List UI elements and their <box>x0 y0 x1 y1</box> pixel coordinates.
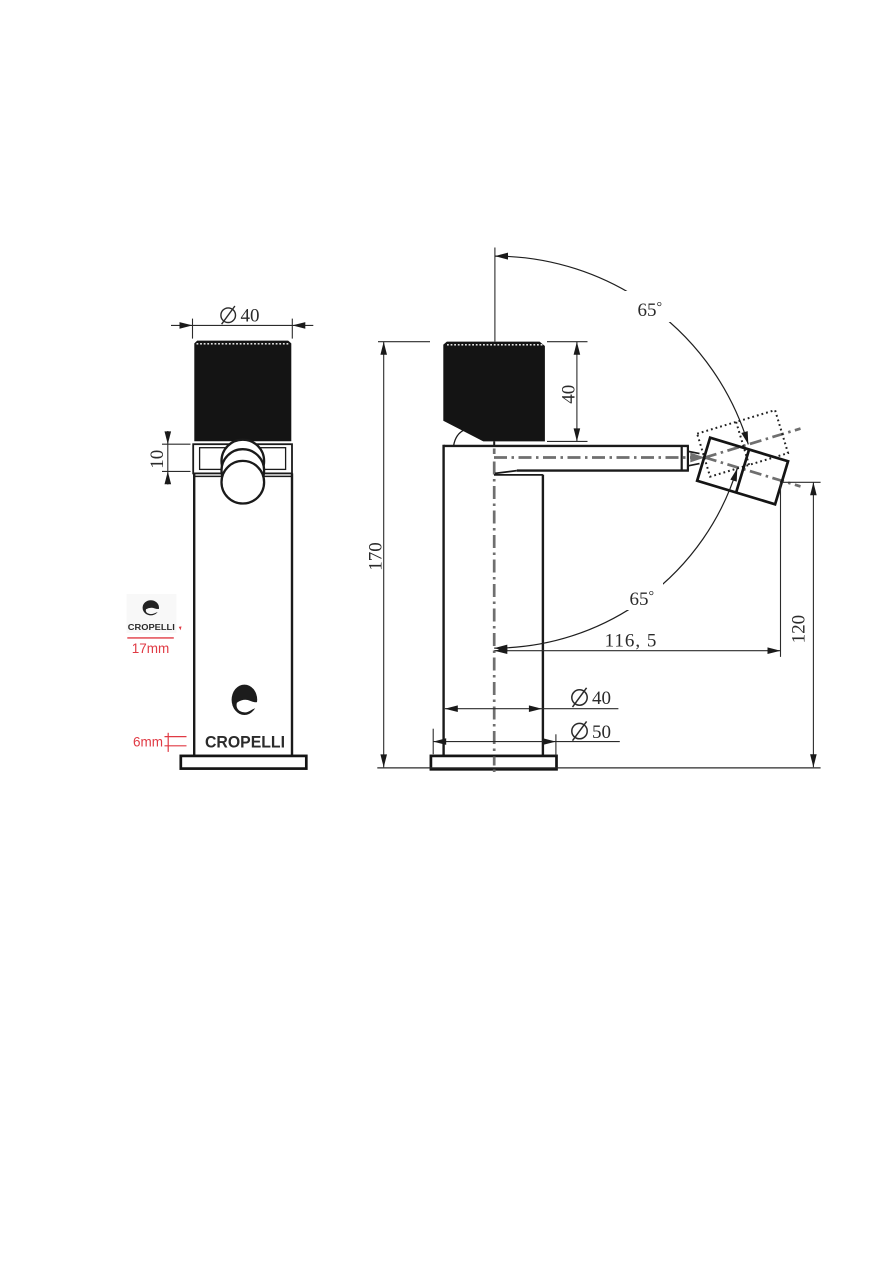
svg-text:50: 50 <box>592 722 611 743</box>
svg-text:170: 170 <box>365 542 386 571</box>
svg-text:CROPELLI: CROPELLI <box>205 732 285 751</box>
svg-text:10: 10 <box>147 450 168 469</box>
svg-text:40: 40 <box>592 688 611 709</box>
svg-text:17mm: 17mm <box>132 641 170 656</box>
svg-text:CROPELLI: CROPELLI <box>128 623 175 632</box>
svg-text:40: 40 <box>558 385 579 404</box>
svg-text:6mm: 6mm <box>133 735 163 750</box>
svg-text:120: 120 <box>789 615 810 644</box>
svg-text:116, 5: 116, 5 <box>605 631 658 652</box>
svg-text:40: 40 <box>241 305 260 326</box>
